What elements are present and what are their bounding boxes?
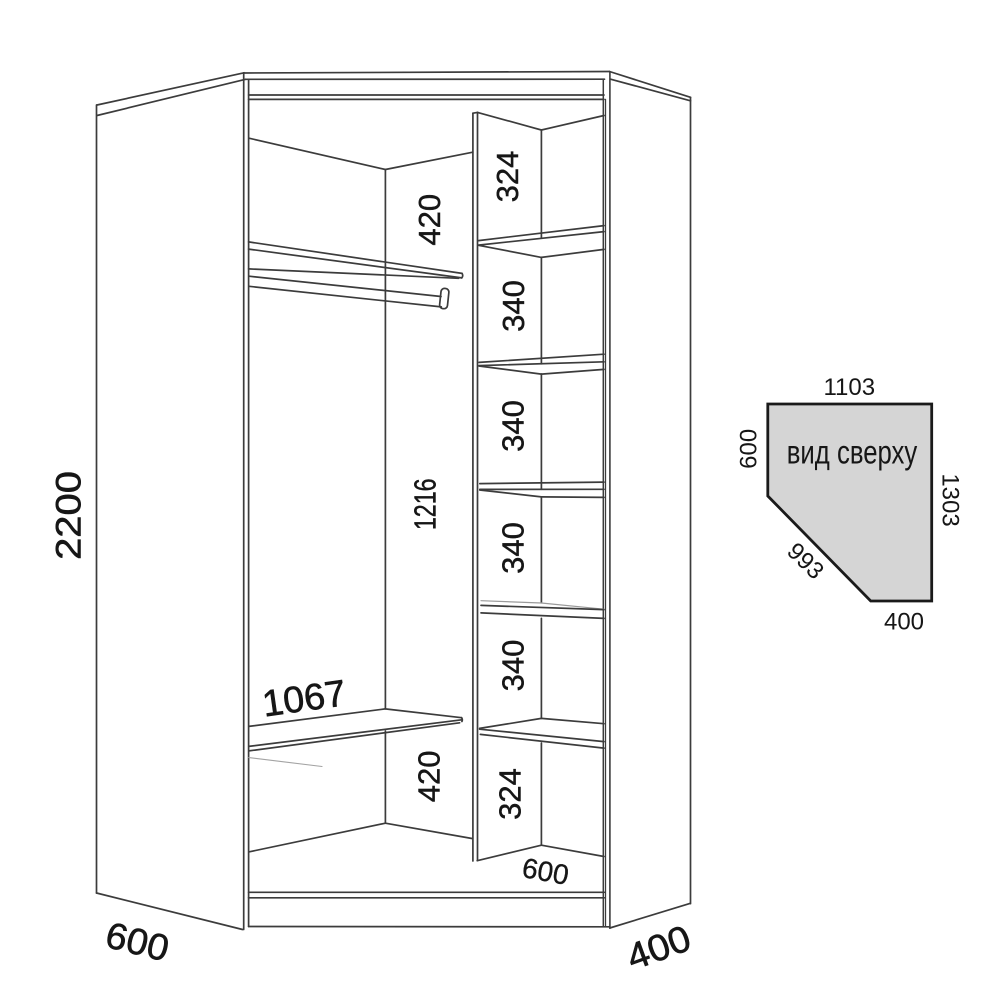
svg-text:420: 420 xyxy=(412,751,447,803)
svg-text:400: 400 xyxy=(884,609,924,636)
svg-text:1103: 1103 xyxy=(823,374,875,401)
svg-text:340: 340 xyxy=(496,640,531,692)
svg-text:324: 324 xyxy=(490,151,525,203)
svg-text:340: 340 xyxy=(496,522,531,574)
svg-text:2200: 2200 xyxy=(49,471,88,560)
svg-text:вид сверху: вид сверху xyxy=(787,435,918,472)
svg-text:1303: 1303 xyxy=(937,473,964,526)
svg-text:1067: 1067 xyxy=(260,672,349,725)
svg-text:400: 400 xyxy=(622,918,697,979)
svg-text:600: 600 xyxy=(102,914,174,970)
svg-text:600: 600 xyxy=(520,852,571,891)
svg-text:600: 600 xyxy=(736,429,763,469)
svg-text:340: 340 xyxy=(496,400,531,452)
svg-text:420: 420 xyxy=(412,194,447,246)
svg-text:340: 340 xyxy=(496,280,531,332)
svg-text:1216: 1216 xyxy=(407,478,442,530)
svg-text:324: 324 xyxy=(493,768,528,820)
